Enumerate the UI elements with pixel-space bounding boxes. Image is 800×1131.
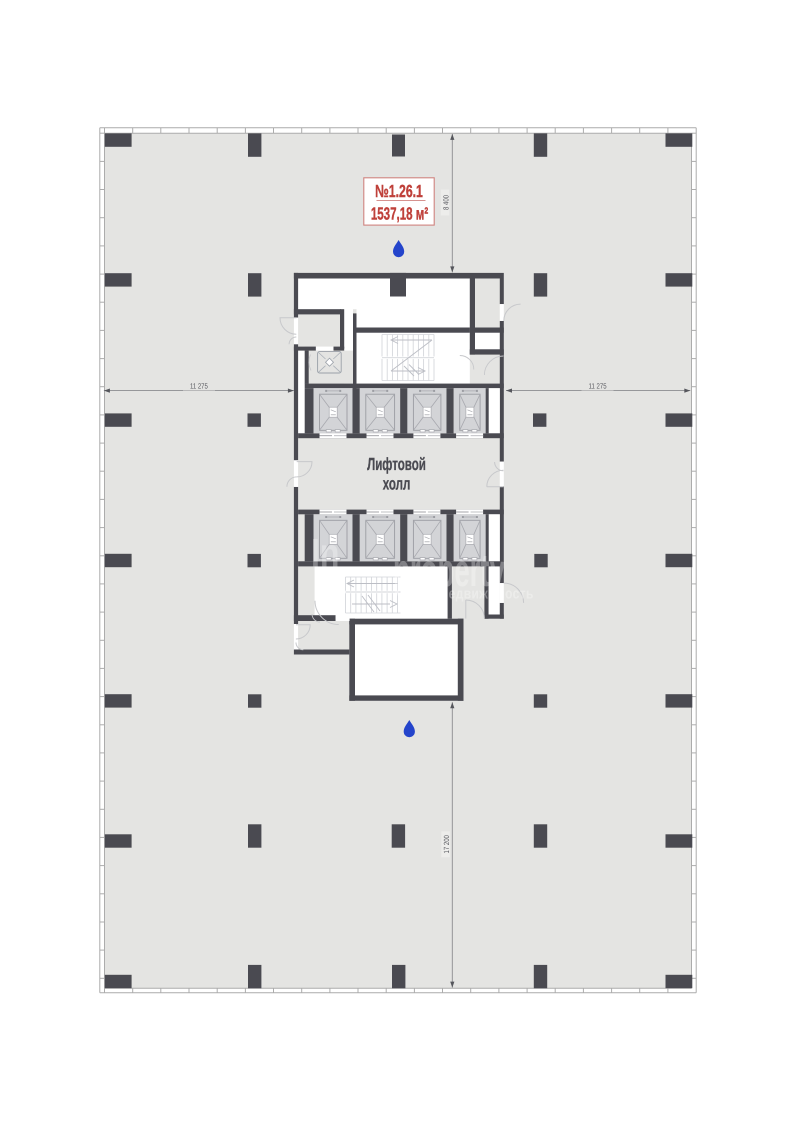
svg-text:8 400: 8 400 [441, 195, 450, 210]
svg-text:недвижимость: недвижимость [441, 586, 534, 603]
svg-text:1537,18 м²: 1537,18 м² [371, 204, 428, 224]
svg-text:№1.26.1: №1.26.1 [375, 181, 423, 201]
svg-text:холл: холл [383, 474, 411, 494]
svg-text:In: In [311, 532, 339, 576]
svg-text:11 275: 11 275 [589, 382, 607, 391]
svg-text:11 275: 11 275 [190, 382, 208, 391]
svg-text:17 200: 17 200 [442, 835, 451, 853]
svg-text:Лифтовой: Лифтовой [367, 454, 426, 474]
